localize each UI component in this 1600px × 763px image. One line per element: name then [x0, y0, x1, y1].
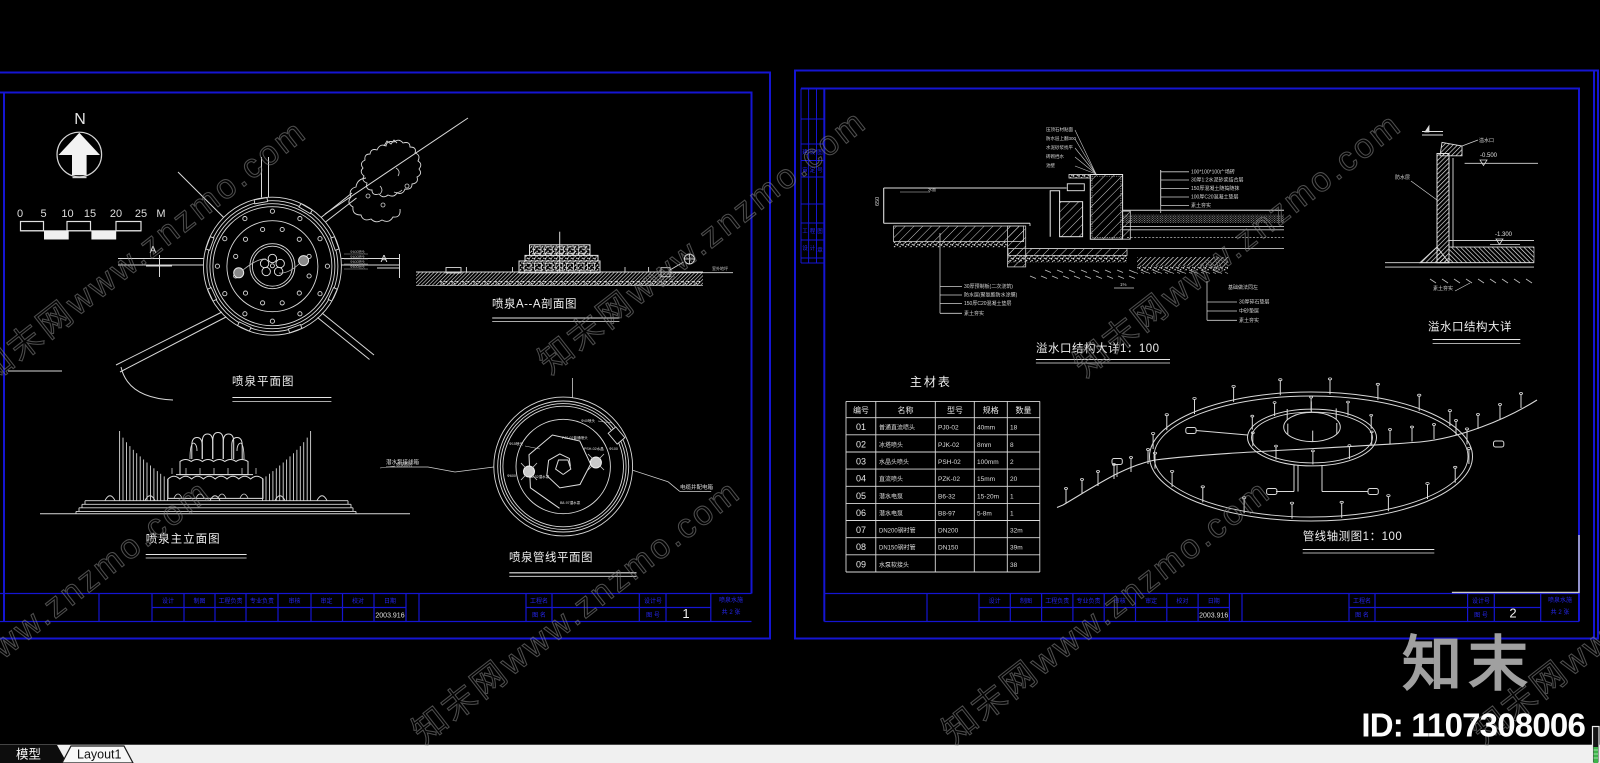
svg-text:池壁: 池壁	[1046, 162, 1055, 168]
svg-text:10: 10	[61, 208, 73, 220]
svg-text:PJK-02: PJK-02	[938, 442, 960, 449]
svg-text:工程名: 工程名	[1353, 597, 1371, 605]
svg-text:02: 02	[856, 439, 866, 449]
svg-text:编号: 编号	[853, 405, 869, 415]
svg-text:04: 04	[856, 474, 866, 484]
svg-text:B8-97: B8-97	[938, 510, 956, 517]
svg-text:Φ600喷头: Φ600喷头	[350, 249, 366, 254]
svg-text:DN150: DN150	[938, 545, 959, 552]
svg-text:06: 06	[856, 508, 866, 518]
svg-text:水泵软接头: 水泵软接头	[879, 561, 909, 569]
svg-text:09: 09	[856, 559, 866, 569]
svg-text:制图: 制图	[1020, 597, 1032, 605]
svg-text:39m: 39m	[1010, 545, 1023, 552]
svg-text:2003.916: 2003.916	[375, 613, 404, 620]
svg-text:PJ0-02: PJ0-02	[938, 425, 959, 432]
svg-text:水晶头喷头: 水晶头喷头	[879, 458, 909, 466]
svg-text:40mm: 40mm	[977, 425, 995, 432]
svg-text:计: 计	[810, 244, 816, 252]
svg-text:PJ0-02普通喷头: PJ0-02普通喷头	[562, 435, 588, 440]
svg-text:喷泉管线平面图: 喷泉管线平面图	[509, 550, 593, 564]
svg-text:2: 2	[1509, 606, 1516, 621]
svg-text:审定: 审定	[320, 597, 332, 605]
svg-text:B8-97潜水泵: B8-97潜水泵	[560, 500, 581, 505]
svg-text:章: 章	[817, 246, 823, 254]
svg-text:05: 05	[856, 491, 866, 501]
svg-text:砖砌挡水: 砖砌挡水	[1046, 153, 1064, 160]
svg-text:图: 图	[817, 227, 823, 235]
svg-text:20: 20	[110, 208, 122, 220]
svg-text:150厚C20混凝土垫层: 150厚C20混凝土垫层	[964, 300, 1012, 307]
svg-text:压顶石材贴面: 压顶石材贴面	[1046, 126, 1073, 133]
svg-text:管线轴测图1：100: 管线轴测图1：100	[1303, 529, 1403, 543]
svg-text:15mm: 15mm	[977, 476, 995, 483]
svg-text:喷泉A--A剖面图: 喷泉A--A剖面图	[492, 297, 577, 311]
svg-text:模型: 模型	[16, 748, 41, 762]
svg-text:1: 1	[682, 606, 689, 621]
svg-text:中砂垫层: 中砂垫层	[1239, 308, 1259, 315]
svg-text:N: N	[74, 111, 86, 128]
svg-text:15: 15	[84, 208, 96, 220]
svg-text:1: 1	[1010, 493, 1014, 500]
svg-text:08: 08	[856, 542, 866, 552]
svg-text:喷泉水施: 喷泉水施	[1548, 596, 1572, 604]
svg-text:数量: 数量	[1016, 405, 1032, 415]
svg-text:Φ600喷头: Φ600喷头	[350, 254, 366, 259]
svg-text:审核: 审核	[288, 597, 300, 605]
svg-text:Φ15喷头: Φ15喷头	[509, 441, 523, 446]
svg-text:型号: 型号	[947, 406, 963, 415]
svg-text:校对: 校对	[1176, 597, 1188, 605]
svg-text:30厚碎石垫层: 30厚碎石垫层	[1239, 299, 1270, 306]
svg-text:水泥砂浆找平: 水泥砂浆找平	[1046, 144, 1073, 151]
svg-text:01: 01	[856, 422, 866, 432]
svg-text:潜水电泵: 潜水电泵	[879, 509, 903, 517]
svg-text:日期: 日期	[384, 597, 396, 605]
svg-text:Φ600喷头: Φ600喷头	[350, 264, 366, 269]
svg-text:图 号: 图 号	[646, 612, 660, 619]
svg-text:日期: 日期	[1208, 597, 1220, 605]
svg-text:工: 工	[802, 228, 808, 235]
svg-text:Φ600喷头: Φ600喷头	[350, 259, 366, 264]
svg-text:-1.300: -1.300	[1495, 232, 1513, 238]
svg-text:名称: 名称	[898, 405, 914, 415]
svg-text:设计号: 设计号	[644, 597, 662, 605]
svg-text:溢水口结构大详: 溢水口结构大详	[1428, 320, 1512, 334]
svg-text:-0.500: -0.500	[1480, 153, 1498, 159]
svg-text:喷泉水施: 喷泉水施	[719, 596, 743, 604]
svg-text:30厚预制板(二次浇筑): 30厚预制板(二次浇筑)	[964, 283, 1013, 290]
svg-text:制图: 制图	[193, 597, 205, 605]
svg-text:素土夯实: 素土夯实	[964, 310, 984, 317]
svg-text:Φ600: Φ600	[507, 474, 516, 478]
svg-text:2: 2	[1010, 459, 1014, 466]
svg-text:校对: 校对	[352, 597, 364, 605]
svg-text:100*100*100广场砖: 100*100*100广场砖	[1191, 168, 1235, 175]
svg-text:素土夯实: 素土夯实	[1433, 285, 1453, 292]
svg-text:设: 设	[802, 244, 808, 252]
svg-text:程: 程	[810, 227, 816, 235]
svg-text:设计: 设计	[989, 597, 1001, 605]
svg-text:Layout1: Layout1	[77, 748, 122, 762]
svg-text:素土夯实: 素土夯实	[1191, 202, 1211, 209]
svg-text:20: 20	[1010, 476, 1018, 483]
svg-text:150厚混凝土随捣随抹: 150厚混凝土随捣随抹	[1191, 185, 1239, 192]
svg-text:设计号: 设计号	[1472, 597, 1490, 605]
svg-text:冰塔喷头: 冰塔喷头	[879, 441, 903, 449]
svg-text:PZK-02: PZK-02	[938, 476, 960, 483]
svg-text:0: 0	[17, 208, 23, 220]
svg-text:工程负责: 工程负责	[218, 597, 242, 605]
svg-text:A: A	[381, 254, 388, 265]
svg-text:PSH-02: PSH-02	[938, 459, 961, 466]
svg-text:15-20m: 15-20m	[977, 493, 999, 500]
svg-text:100厚C20混凝土垫层: 100厚C20混凝土垫层	[1191, 194, 1239, 201]
svg-text:03: 03	[856, 456, 866, 466]
svg-text:07: 07	[856, 525, 866, 535]
svg-text:专业负责: 专业负责	[250, 597, 274, 605]
svg-text:PSH-02水晶: PSH-02水晶	[584, 446, 604, 451]
svg-text:知末: 知末	[1402, 631, 1534, 698]
svg-text:基础做法同左: 基础做法同左	[1228, 284, 1258, 291]
svg-text:工程负责: 工程负责	[1045, 597, 1069, 605]
svg-text:ID: 1107308006: ID: 1107308006	[1361, 707, 1585, 744]
svg-text:直流喷头: 直流喷头	[879, 475, 903, 483]
svg-text:潜水电泵: 潜水电泵	[879, 492, 903, 500]
svg-text:18: 18	[1010, 425, 1018, 432]
svg-text:5: 5	[40, 208, 46, 220]
svg-text:DN200钢衬管: DN200钢衬管	[879, 527, 916, 535]
svg-text:普通直流喷头: 普通直流喷头	[879, 424, 915, 432]
svg-text:潜水泵接线箱: 潜水泵接线箱	[386, 458, 420, 466]
svg-text:规格: 规格	[983, 405, 999, 415]
svg-text:防水层上翻300: 防水层上翻300	[1046, 135, 1077, 142]
svg-text:1%: 1%	[1120, 282, 1127, 287]
svg-text:主材表: 主材表	[910, 375, 952, 389]
svg-text:水面: 水面	[928, 186, 936, 192]
svg-text:工程名: 工程名	[530, 597, 548, 605]
svg-text:Φ100: Φ100	[609, 447, 618, 451]
svg-text:DN200: DN200	[938, 528, 959, 535]
svg-text:图 名: 图 名	[1355, 611, 1369, 619]
svg-text:素土夯实: 素土夯实	[1239, 317, 1259, 324]
svg-text:图 号: 图 号	[1474, 612, 1488, 619]
svg-text:8mm: 8mm	[977, 442, 991, 449]
svg-text:5-8m: 5-8m	[977, 510, 992, 517]
svg-text:溢水口: 溢水口	[1479, 137, 1494, 144]
svg-text:共 2 张: 共 2 张	[722, 608, 741, 616]
svg-text:1: 1	[1010, 510, 1014, 517]
svg-text:防水层: 防水层	[1395, 174, 1410, 181]
svg-text:32m: 32m	[1010, 528, 1023, 535]
svg-text:喷泉平面图: 喷泉平面图	[232, 374, 295, 388]
svg-text:650: 650	[875, 197, 881, 206]
svg-text:8: 8	[1010, 442, 1014, 449]
svg-text:室外地坪: 室外地坪	[712, 265, 728, 271]
svg-text:2003.916: 2003.916	[1199, 613, 1228, 620]
svg-text:25: 25	[135, 208, 147, 220]
svg-text:防水层(聚氨酯防水涂膜): 防水层(聚氨酯防水涂膜)	[964, 292, 1018, 299]
svg-text:B6-32潜水泵: B6-32潜水泵	[529, 474, 550, 479]
svg-text:30厚1:2水泥砂浆结合层: 30厚1:2水泥砂浆结合层	[1191, 177, 1244, 184]
svg-text:DN150钢衬管: DN150钢衬管	[879, 544, 916, 552]
svg-text:B6-32: B6-32	[938, 493, 956, 500]
svg-text:38: 38	[1010, 562, 1018, 569]
svg-text:共 2 张: 共 2 张	[1551, 608, 1570, 616]
svg-text:100mm: 100mm	[977, 459, 999, 466]
svg-text:Φ40喷头: Φ40喷头	[581, 418, 595, 423]
svg-text:设计: 设计	[162, 597, 174, 605]
